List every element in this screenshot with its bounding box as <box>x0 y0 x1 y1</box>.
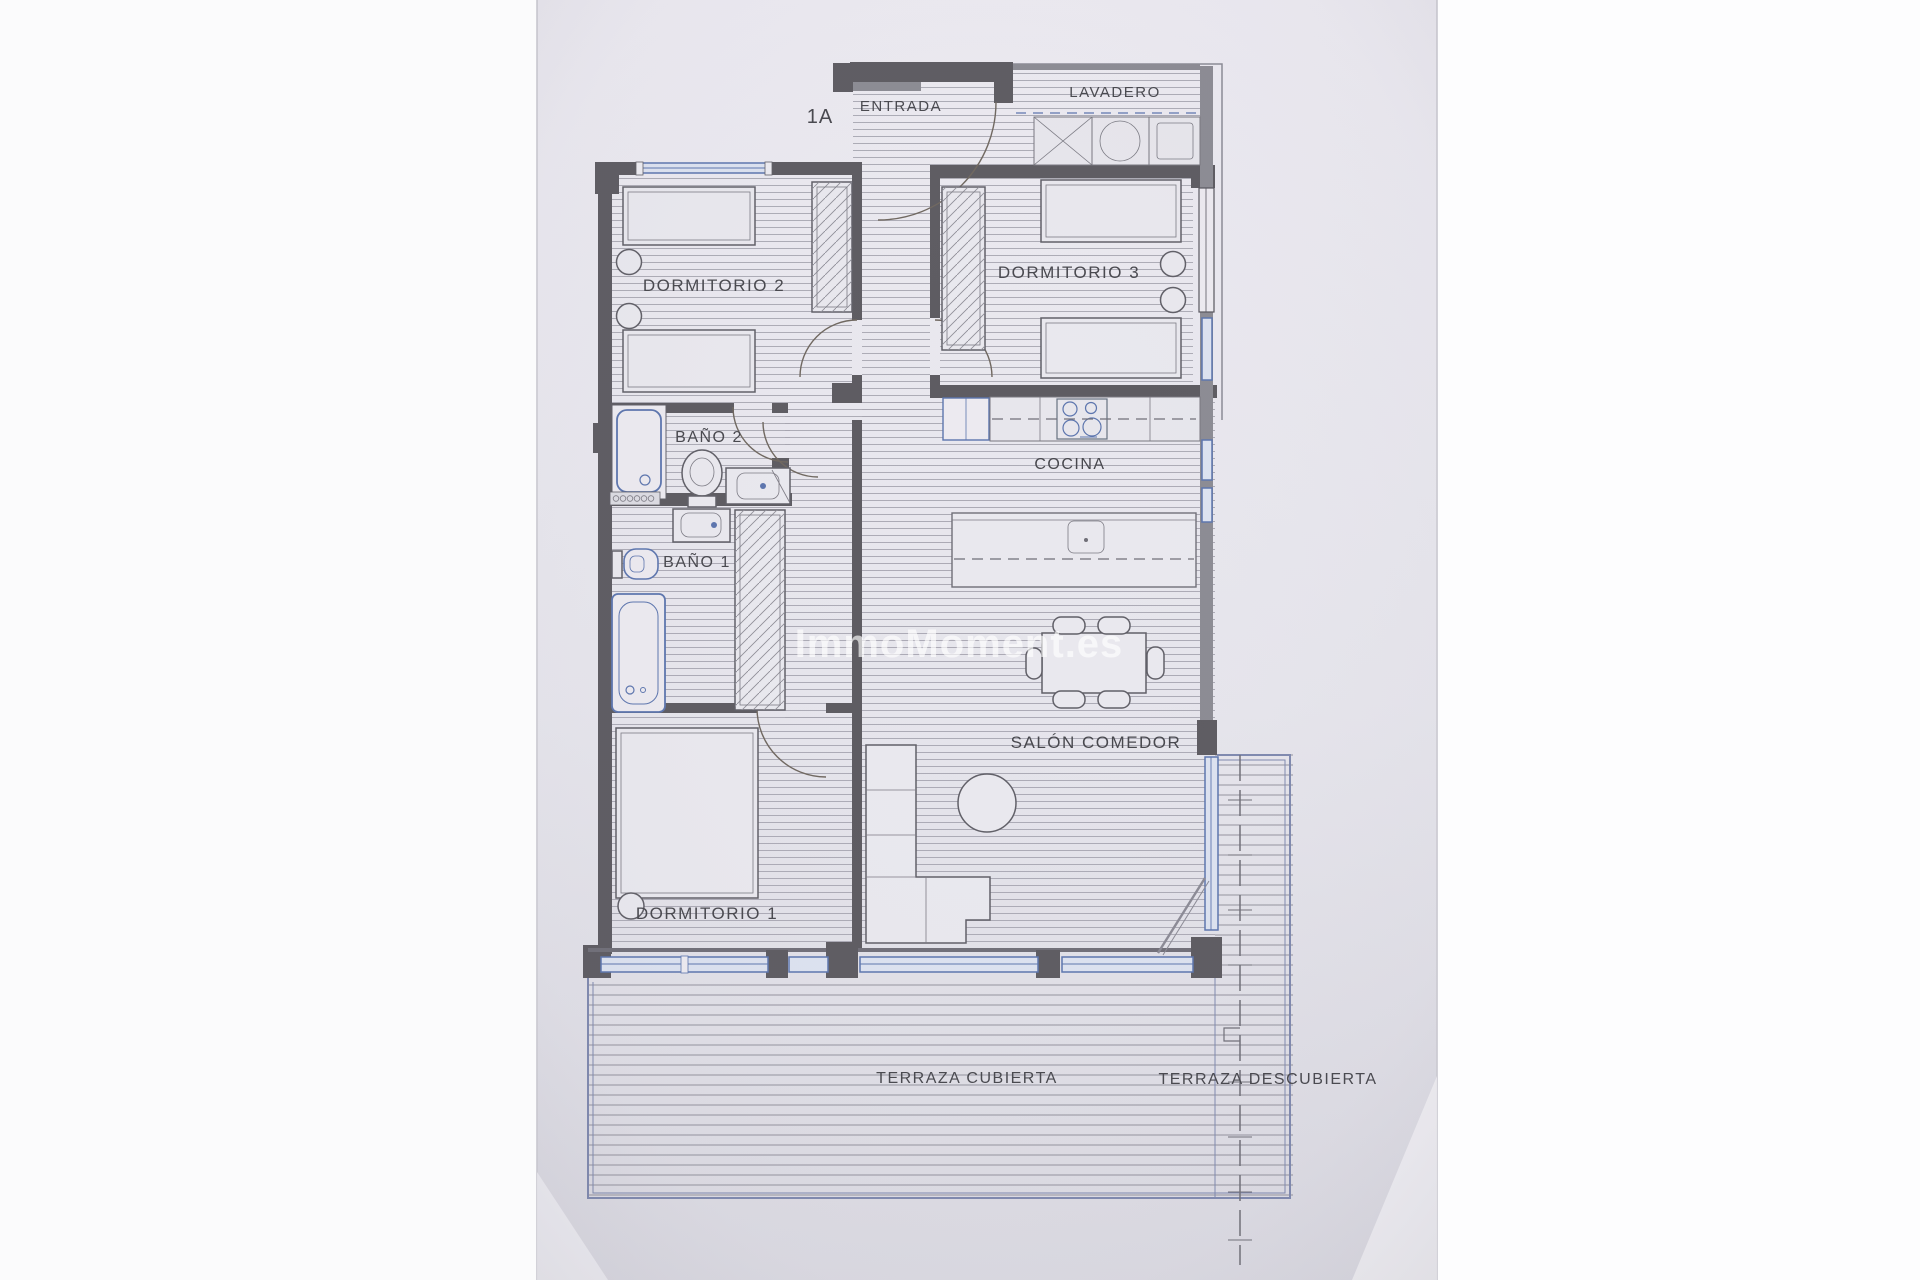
page-margin-left <box>0 0 537 1280</box>
scan-vignette <box>537 0 1437 1280</box>
page-margin-right <box>1437 0 1920 1280</box>
scanned-floor-plan-page: 1A ENTRADA LAVADERO DORMITORIO 2 DORMITO… <box>0 0 1920 1280</box>
floor-plan-canvas: 1A ENTRADA LAVADERO DORMITORIO 2 DORMITO… <box>0 0 1920 1280</box>
